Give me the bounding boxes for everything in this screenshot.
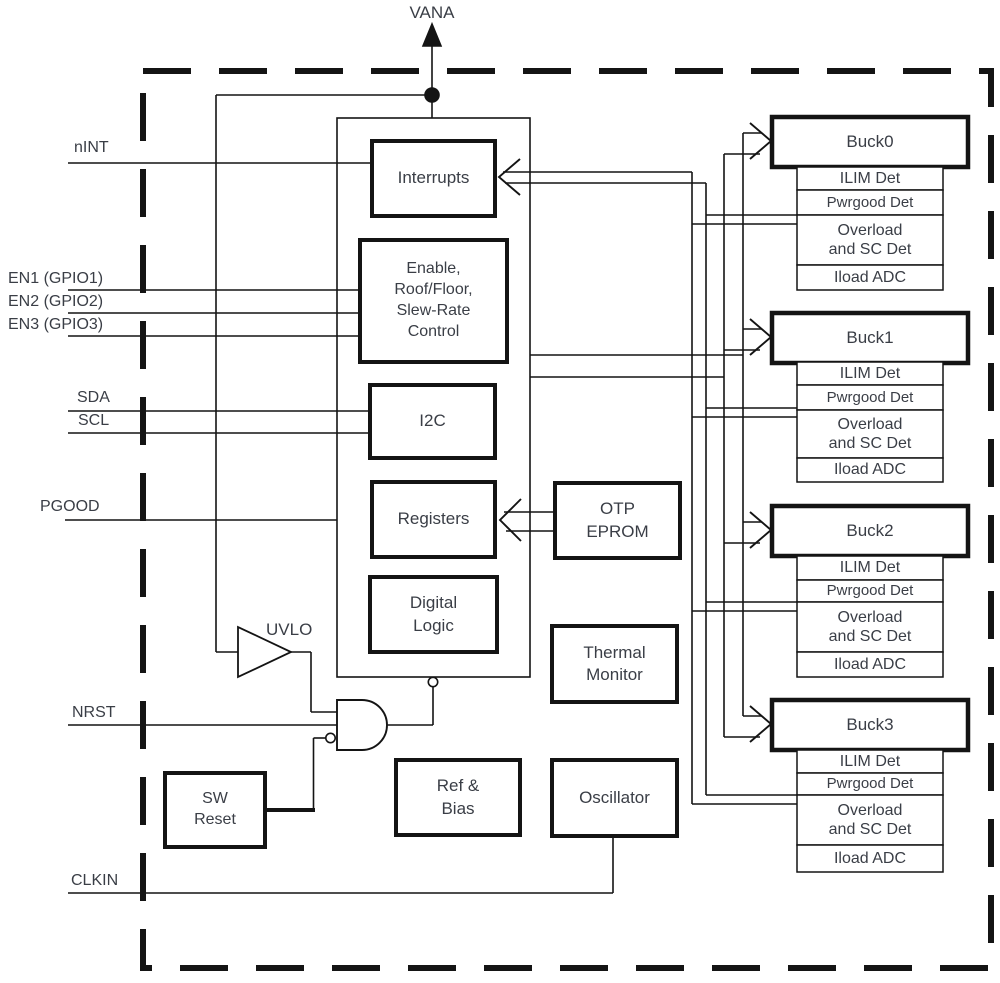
gate-input-inversion-bubble-icon bbox=[326, 733, 335, 742]
enable-control-block-label: Enable, Roof/Floor, Slew-Rate Control bbox=[360, 240, 507, 362]
buck0-ilim-det-label: ILIM Det bbox=[797, 167, 943, 190]
buck1-ilim-det-label: ILIM Det bbox=[797, 362, 943, 385]
en2-pin-label: EN2 (GPIO2) bbox=[8, 292, 103, 311]
buck2-overload-label: Overload and SC Det bbox=[797, 602, 943, 652]
digital-logic-block-label: Digital Logic bbox=[370, 577, 497, 652]
buck0-iload-adc-label: Iload ADC bbox=[797, 265, 943, 290]
oscillator-block-label: Oscillator bbox=[552, 760, 677, 836]
pgood-pin-label: PGOOD bbox=[40, 497, 100, 516]
buck3-iload-adc-label: Iload ADC bbox=[797, 845, 943, 872]
en1-pin-label: EN1 (GPIO1) bbox=[8, 269, 103, 288]
buck0-overload-label: Overload and SC Det bbox=[797, 215, 943, 265]
otp-eprom-block-label: OTP EPROM bbox=[555, 483, 680, 558]
scl-pin-label: SCL bbox=[78, 411, 109, 430]
i2c-block-label: I2C bbox=[370, 385, 495, 458]
buck3-ilim-det-label: ILIM Det bbox=[797, 750, 943, 773]
buck2-title: Buck2 bbox=[772, 506, 968, 556]
vana-arrow-up-icon bbox=[423, 24, 441, 46]
buck2-iload-adc-label: Iload ADC bbox=[797, 652, 943, 677]
buck3-title: Buck3 bbox=[772, 700, 968, 750]
ref-bias-block-label: Ref & Bias bbox=[396, 760, 520, 835]
en3-pin-label: EN3 (GPIO3) bbox=[8, 315, 103, 334]
buck2-pwrgood-det-label: Pwrgood Det bbox=[797, 580, 943, 602]
buck0-pwrgood-det-label: Pwrgood Det bbox=[797, 190, 943, 215]
functional-block-diagram: VANA nINT EN1 (GPIO1) EN2 (GPIO2) EN3 (G… bbox=[0, 0, 1000, 983]
and-gate-icon bbox=[337, 700, 387, 750]
buck1-title: Buck1 bbox=[772, 313, 968, 363]
buck2-ilim-det-label: ILIM Det bbox=[797, 556, 943, 580]
buck0-title: Buck0 bbox=[772, 117, 968, 167]
buck1-iload-adc-label: Iload ADC bbox=[797, 458, 943, 482]
buck1-overload-label: Overload and SC Det bbox=[797, 410, 943, 458]
vana-pin-label: VANA bbox=[400, 3, 464, 23]
buck1-pwrgood-det-label: Pwrgood Det bbox=[797, 385, 943, 410]
registers-block-label: Registers bbox=[372, 482, 495, 557]
clkin-pin-label: CLKIN bbox=[71, 871, 118, 890]
uvlo-label: UVLO bbox=[266, 620, 312, 640]
nint-pin-label: nINT bbox=[74, 138, 109, 157]
interrupts-input-arrowhead-icon bbox=[499, 159, 520, 195]
buck3-overload-label: Overload and SC Det bbox=[797, 795, 943, 845]
registers-input-arrowhead-icon bbox=[500, 499, 521, 541]
core-reset-inversion-bubble-icon bbox=[428, 677, 437, 686]
sda-pin-label: SDA bbox=[77, 388, 110, 407]
interrupts-block-label: Interrupts bbox=[372, 141, 495, 216]
thermal-monitor-block-label: Thermal Monitor bbox=[552, 626, 677, 702]
sw-reset-block-label: SW Reset bbox=[165, 773, 265, 847]
buck3-pwrgood-det-label: Pwrgood Det bbox=[797, 773, 943, 795]
nrst-pin-label: NRST bbox=[72, 703, 116, 722]
